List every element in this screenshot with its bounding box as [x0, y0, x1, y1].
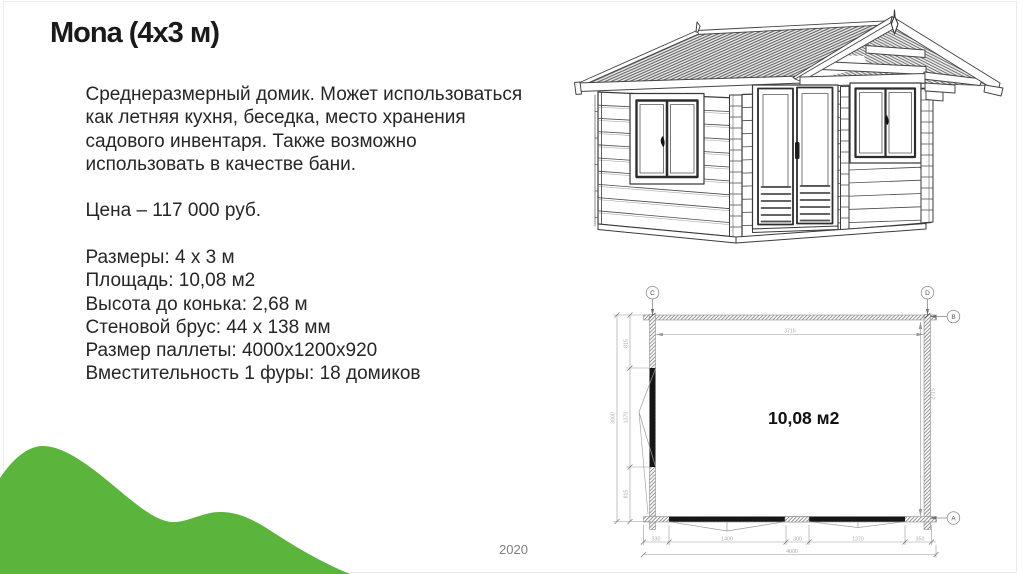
- svg-text:3000: 3000: [611, 412, 617, 424]
- svg-text:10,08 м2: 10,08 м2: [768, 408, 840, 428]
- svg-text:350: 350: [916, 536, 925, 542]
- svg-text:3715: 3715: [784, 329, 796, 335]
- svg-text:330: 330: [652, 536, 661, 542]
- svg-text:1370: 1370: [852, 536, 864, 542]
- svg-text:815: 815: [624, 490, 630, 499]
- svg-text:300: 300: [793, 536, 802, 542]
- svg-text:B: B: [951, 314, 955, 321]
- svg-text:A: A: [951, 516, 956, 523]
- svg-text:1370: 1370: [624, 412, 630, 424]
- svg-text:1400: 1400: [721, 536, 733, 542]
- svg-text:2715: 2715: [931, 388, 937, 400]
- svg-text:C: C: [650, 290, 655, 297]
- svg-text:D: D: [925, 290, 930, 297]
- svg-text:4000: 4000: [786, 549, 798, 555]
- svg-text:815: 815: [624, 339, 630, 348]
